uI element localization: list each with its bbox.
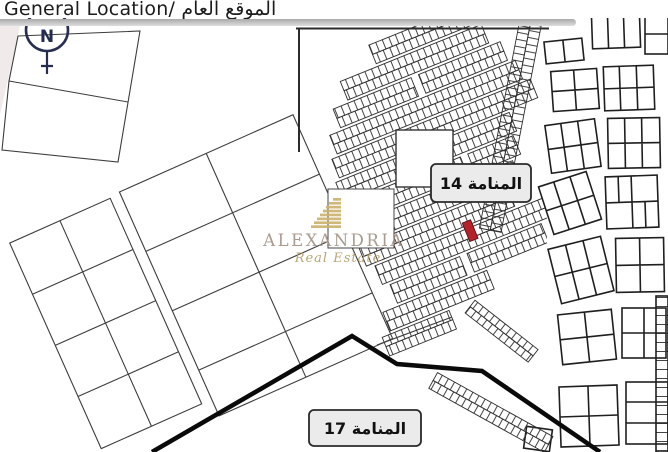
boundary-plot-strips bbox=[429, 373, 553, 452]
header-divider bbox=[0, 19, 576, 26]
compass-north-letter: N bbox=[40, 27, 54, 47]
district-label-text: المنامة 14 bbox=[440, 174, 522, 193]
watermark-brand: ALEXANDRIA bbox=[262, 231, 405, 250]
page-title: General Location/ الموقع العام bbox=[4, 0, 276, 20]
general-location-map-page: ALEXANDRIA Real Estate N المنامة 14 المن… bbox=[0, 0, 668, 452]
district-label-manama-14: المنامة 14 bbox=[431, 164, 531, 202]
boundary-plot-strips-upper bbox=[465, 300, 538, 362]
district-label-text: المنامة 17 bbox=[324, 419, 406, 438]
district-label-manama-17: المنامة 17 bbox=[309, 410, 421, 446]
page-header: General Location/ الموقع العام bbox=[0, 0, 668, 18]
watermark-tagline: Real Estate bbox=[294, 251, 382, 266]
location-map: ALEXANDRIA Real Estate N المنامة 14 المن… bbox=[0, 0, 668, 452]
vacant-parcels bbox=[2, 31, 140, 162]
